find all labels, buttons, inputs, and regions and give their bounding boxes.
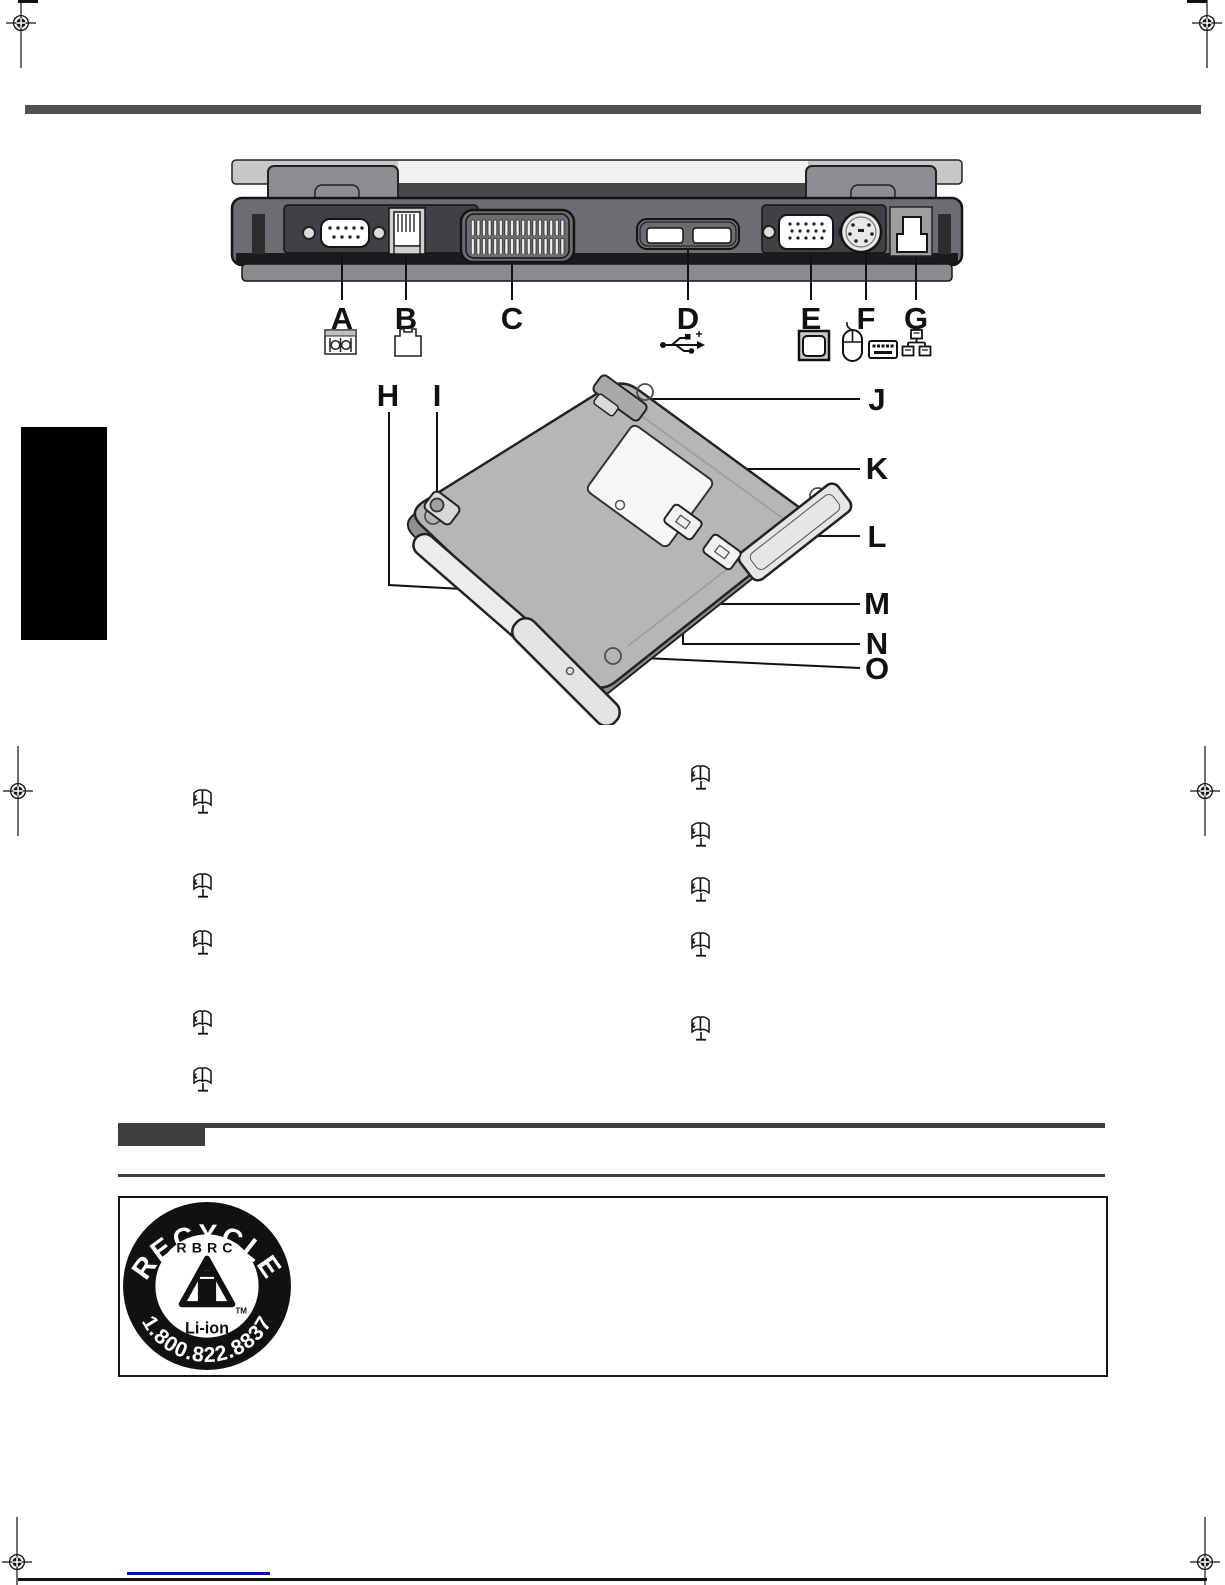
modem-port	[389, 208, 425, 254]
bottom-view-illustration: H I J K L M N O	[368, 365, 894, 725]
seal-tm-text: TM	[235, 1306, 247, 1315]
reference-manual-icon	[692, 933, 709, 956]
reference-manual-icon	[194, 1068, 211, 1091]
reference-manual-icon	[194, 790, 211, 813]
reference-manual-icon	[194, 931, 211, 954]
reference-manual-icon	[692, 766, 709, 789]
usb-ports	[637, 219, 739, 249]
left-slot	[252, 214, 265, 254]
registration-mark	[1192, 0, 1222, 68]
seal-org-text: RBRC	[176, 1241, 237, 1257]
body-lip	[242, 264, 952, 281]
label-K: K	[866, 451, 889, 486]
label-M: M	[864, 586, 890, 621]
bottom-edge-line	[18, 1578, 1207, 1581]
label-F: F	[857, 301, 876, 336]
reference-manual-icon	[692, 823, 709, 846]
reference-manual-icon	[194, 874, 211, 897]
bottom-base	[415, 384, 810, 688]
reference-manual-icon	[692, 878, 709, 901]
serial-port-icon	[325, 330, 356, 354]
registration-mark	[1190, 1517, 1220, 1585]
label-L: L	[868, 519, 887, 554]
rbrc-recycle-seal: RECYCLE 1.800.822.8837 RBRC TM Li-ion	[121, 1200, 293, 1372]
label-O: O	[865, 651, 889, 686]
reference-manual-icon	[692, 1017, 709, 1040]
manual-page: A B C D E F G	[0, 0, 1225, 1585]
ventilation-grille	[461, 210, 574, 262]
registration-mark	[6, 0, 36, 68]
body-bottom-edge	[236, 253, 958, 264]
registration-mark	[3, 746, 33, 836]
registration-mark	[2, 1517, 32, 1585]
page-tick	[18, 0, 38, 3]
keyboard-mouse-port	[841, 212, 881, 252]
label-D: D	[677, 301, 699, 336]
lid-center	[398, 161, 808, 183]
keyboard-icon	[869, 341, 897, 358]
rear-view-illustration: A B C D E F G	[225, 148, 970, 368]
label-I: I	[433, 378, 442, 413]
page-tick	[1187, 0, 1207, 3]
label-J: J	[868, 382, 885, 417]
label-C: C	[501, 301, 523, 336]
external-display-icon	[799, 331, 829, 360]
lan-port	[890, 207, 932, 256]
reference-manual-icon	[194, 1011, 211, 1034]
label-H: H	[377, 378, 399, 413]
right-slot	[938, 214, 951, 254]
seal-chemistry-text: Li-ion	[185, 1320, 229, 1338]
registration-mark	[1190, 746, 1220, 836]
